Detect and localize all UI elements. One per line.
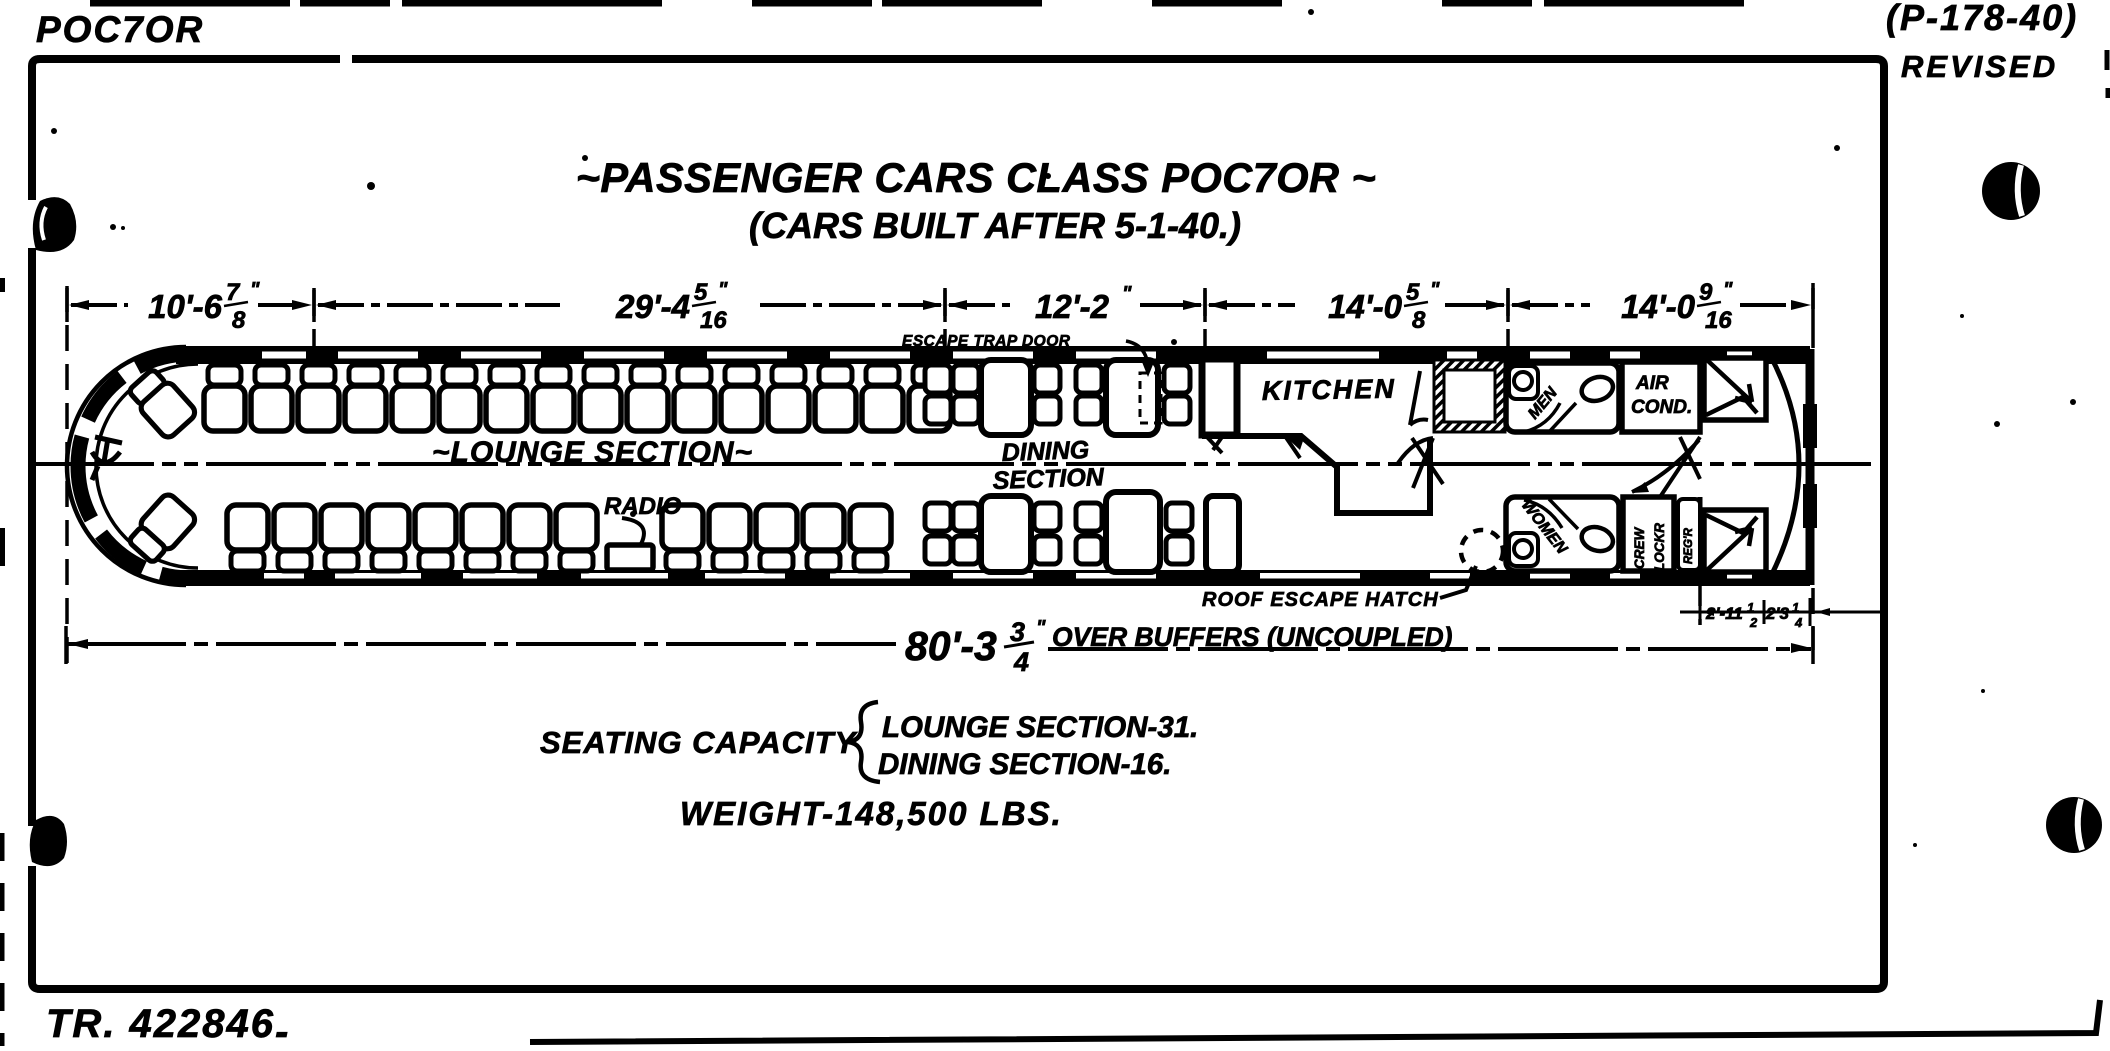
svg-text:16: 16 — [700, 307, 727, 334]
svg-text:2: 2 — [1749, 615, 1758, 630]
svg-text:CREW: CREW — [1632, 526, 1647, 569]
svg-text:TR. 422846-: TR. 422846- — [46, 1002, 290, 1046]
svg-text:7: 7 — [226, 279, 241, 306]
svg-text:": " — [718, 279, 728, 301]
svg-text:8: 8 — [1412, 307, 1426, 334]
svg-text:1: 1 — [1747, 600, 1754, 615]
svg-text:": " — [250, 279, 260, 301]
svg-text:ESCAPE TRAP DOOR: ESCAPE TRAP DOOR — [902, 333, 1071, 350]
svg-text:9: 9 — [1699, 279, 1713, 306]
svg-text:4: 4 — [1013, 647, 1029, 677]
svg-text:2'-11: 2'-11 — [1705, 604, 1743, 623]
svg-text:": " — [1036, 617, 1046, 639]
svg-text:14'-0: 14'-0 — [1328, 288, 1403, 325]
svg-text:5: 5 — [694, 279, 708, 306]
svg-text:~PASSENGER CARS CLASS POC7OR ~: ~PASSENGER CARS CLASS POC7OR ~ — [576, 154, 1377, 201]
svg-text:REG'R: REG'R — [1683, 527, 1695, 564]
svg-text:80'-3: 80'-3 — [905, 623, 997, 669]
svg-text:SEATING CAPACITY: SEATING CAPACITY — [540, 725, 859, 760]
svg-text:5: 5 — [1406, 279, 1420, 306]
svg-text:DINING SECTION-16.: DINING SECTION-16. — [878, 748, 1171, 781]
svg-text:OVER BUFFERS (UNCOUPLED): OVER BUFFERS (UNCOUPLED) — [1052, 622, 1453, 652]
svg-text:KITCHEN: KITCHEN — [1262, 374, 1397, 406]
svg-text:LOUNGE SECTION-31.: LOUNGE SECTION-31. — [882, 711, 1198, 744]
svg-text:8: 8 — [232, 307, 246, 334]
svg-text:4: 4 — [1794, 615, 1803, 630]
svg-text:COND.: COND. — [1631, 397, 1692, 418]
svg-text:10'-6: 10'-6 — [148, 288, 223, 325]
svg-text:29'-4: 29'-4 — [615, 288, 690, 325]
svg-text:(CARS BUILT AFTER 5-1-40.): (CARS BUILT AFTER 5-1-40.) — [749, 205, 1241, 246]
svg-text:RADIO: RADIO — [604, 493, 682, 520]
svg-text:DINING: DINING — [1001, 436, 1089, 467]
svg-text:LOCKR: LOCKR — [1652, 523, 1667, 571]
svg-text:": " — [1430, 279, 1440, 301]
svg-text:16: 16 — [1705, 307, 1732, 334]
svg-text:WEIGHT-148,500 LBS.: WEIGHT-148,500 LBS. — [680, 795, 1063, 832]
svg-text:": " — [1723, 279, 1733, 301]
svg-text:1: 1 — [1792, 600, 1799, 615]
svg-text:SECTION: SECTION — [992, 463, 1105, 495]
svg-text:2'3: 2'3 — [1765, 604, 1789, 623]
svg-text:12'-2: 12'-2 — [1035, 288, 1110, 325]
svg-text:(P-178-40): (P-178-40) — [1886, 0, 2078, 38]
svg-text:ROOF ESCAPE HATCH: ROOF ESCAPE HATCH — [1202, 589, 1439, 611]
svg-text:REVISED: REVISED — [1901, 49, 2058, 84]
svg-text:AIR: AIR — [1635, 373, 1669, 394]
svg-text:POC7OR: POC7OR — [36, 9, 204, 50]
svg-text:~LOUNGE SECTION~: ~LOUNGE SECTION~ — [432, 436, 753, 469]
svg-text:14'-0: 14'-0 — [1621, 288, 1696, 325]
svg-text:": " — [1122, 283, 1132, 305]
